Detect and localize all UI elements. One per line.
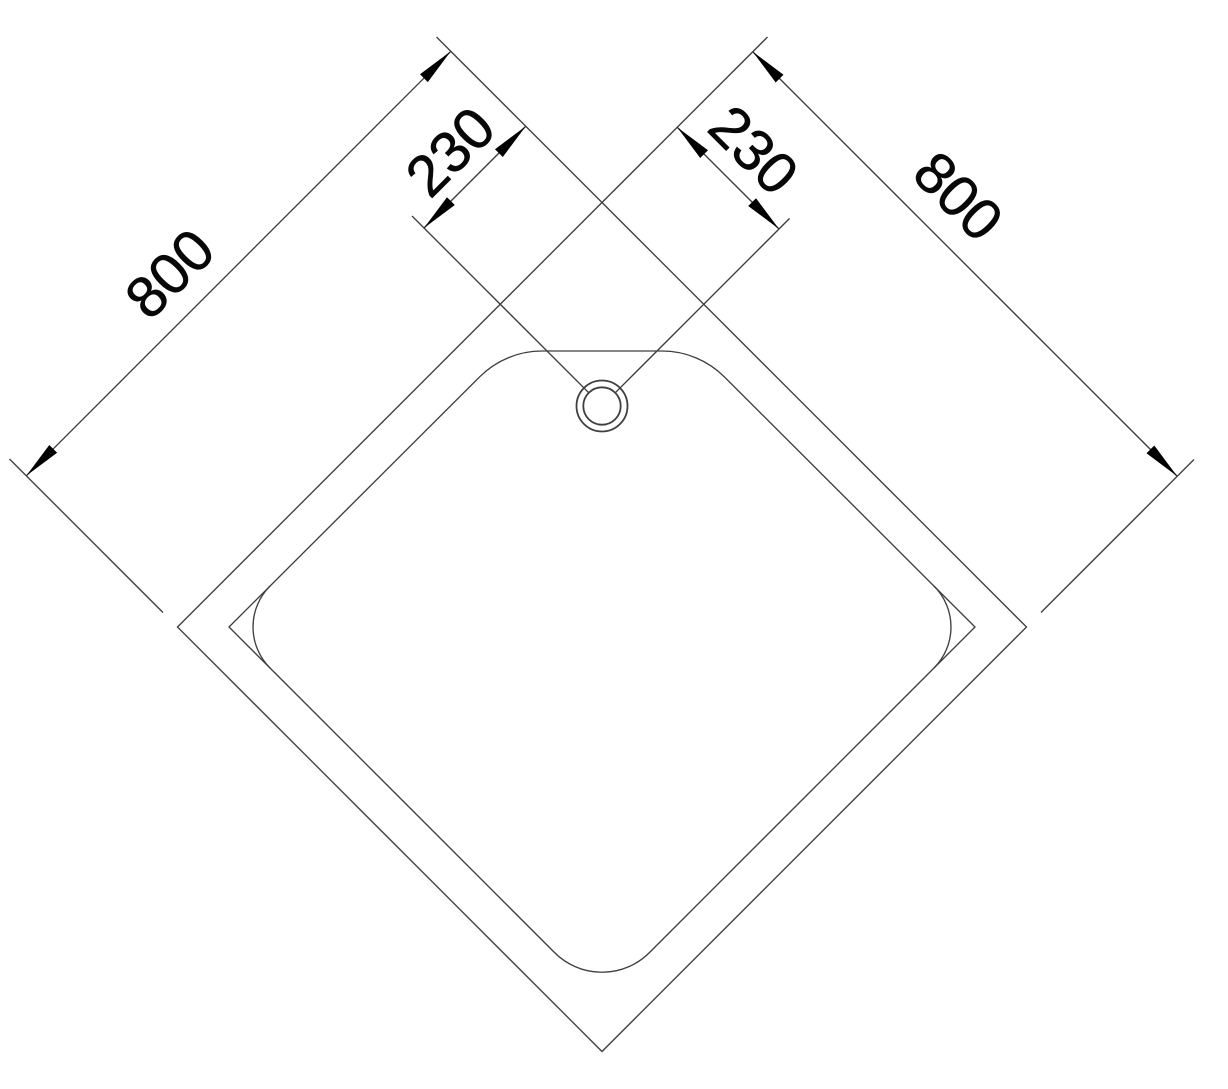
svg-text:800: 800 (113, 217, 227, 331)
svg-text:230: 230 (393, 95, 507, 209)
svg-text:230: 230 (696, 93, 810, 207)
svg-text:800: 800 (901, 139, 1015, 253)
